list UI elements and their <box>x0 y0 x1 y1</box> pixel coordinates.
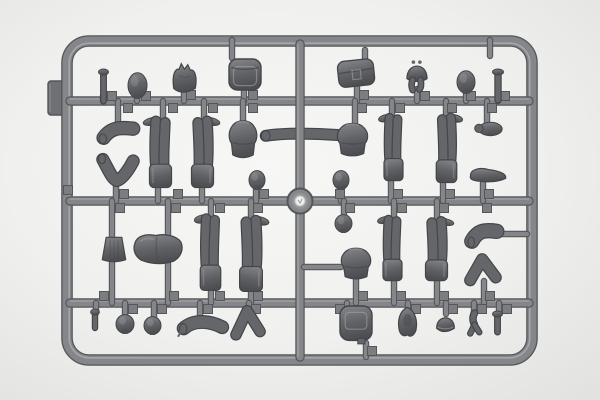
part-pack-bag <box>340 306 372 344</box>
part-satchel-bag <box>337 58 376 88</box>
part-head <box>116 315 134 334</box>
part-head-small <box>333 171 349 190</box>
part-backpack <box>229 59 261 90</box>
part-head <box>144 317 161 335</box>
part-torso-large <box>134 235 182 264</box>
part-torso <box>229 121 257 158</box>
part-greatcoat-skirt <box>102 237 125 261</box>
sprue-center-hub <box>288 189 313 214</box>
photo-model-kit-sprue <box>0 0 600 400</box>
part-pin-small <box>91 309 100 328</box>
part-head <box>457 71 475 94</box>
sprue-scene <box>0 0 600 400</box>
part-torso <box>341 248 370 279</box>
part-helmet <box>437 318 455 332</box>
part-head-small <box>249 171 265 190</box>
part-head-small <box>335 215 352 233</box>
part-torso <box>337 123 367 155</box>
part-head <box>128 73 147 99</box>
